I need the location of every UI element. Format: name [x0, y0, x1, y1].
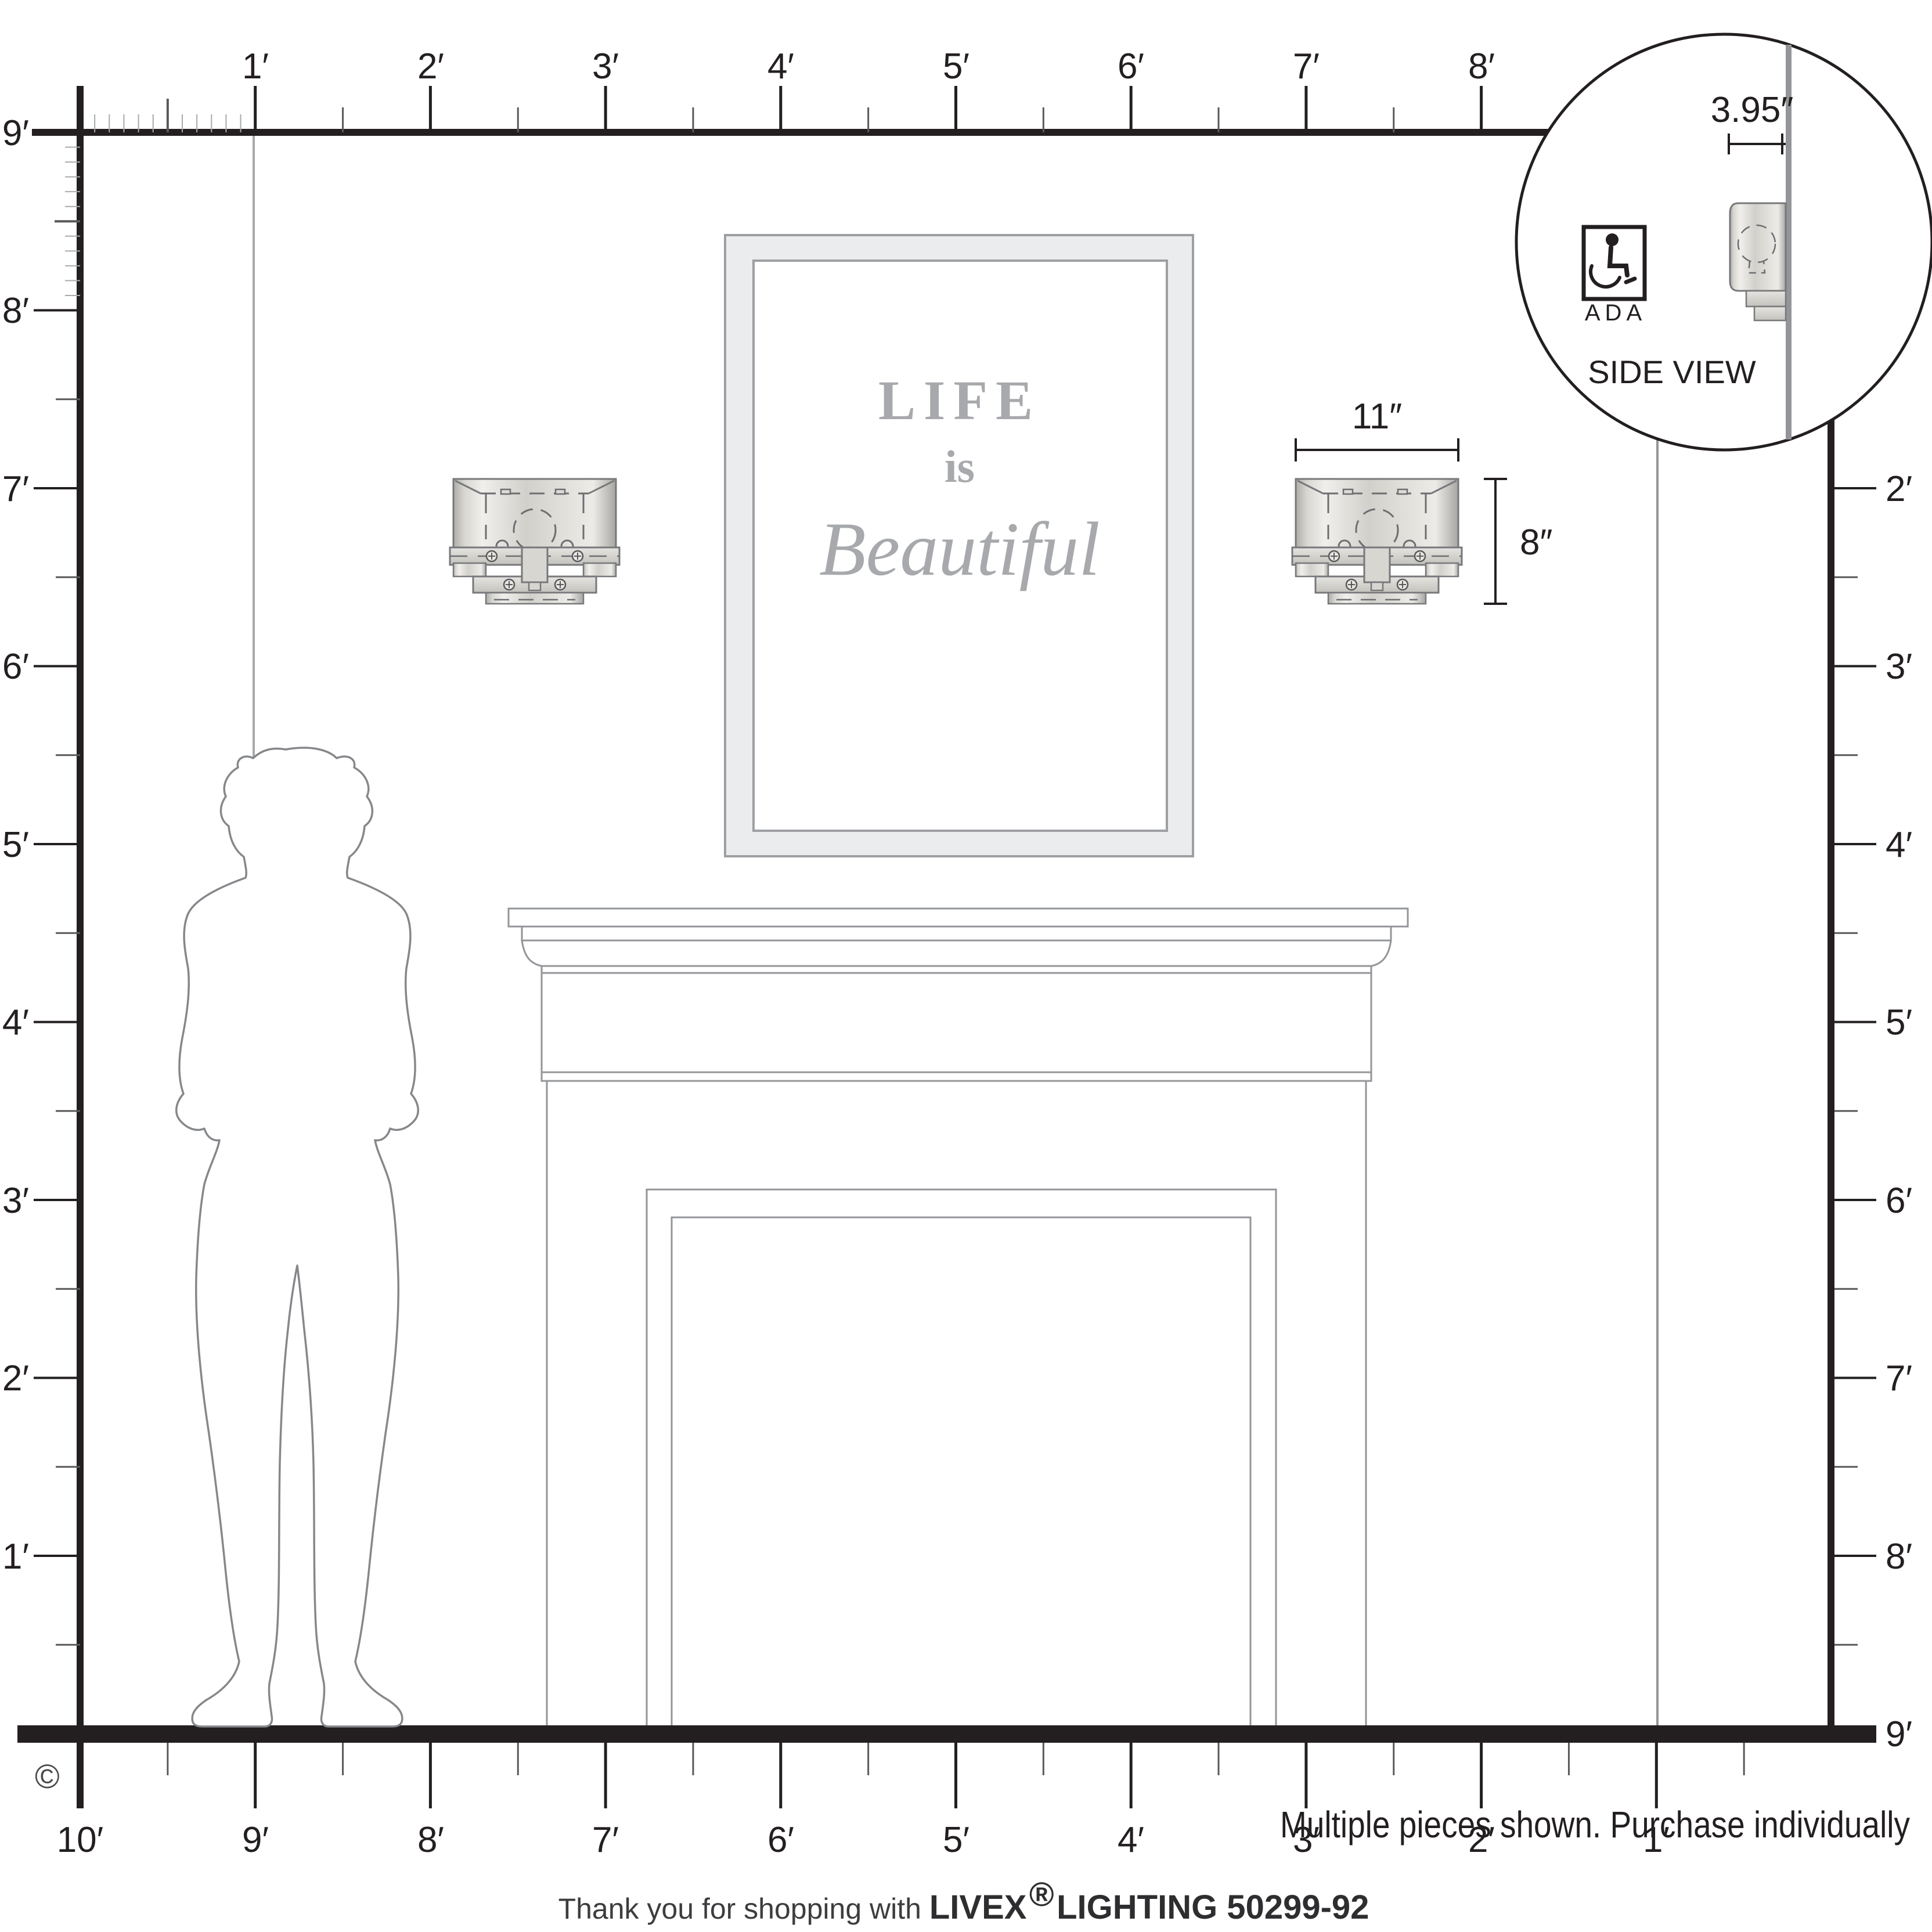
firebox-outer-frame [647, 1190, 1276, 1725]
right-ruler-label: 8′ [1886, 1537, 1912, 1577]
fireplace-mantel-shelf [509, 909, 1408, 927]
registered-mark: ® [1029, 1876, 1054, 1913]
bottom-ruler-label: 4′ [1118, 1820, 1144, 1860]
footer-brand-line: Thank you for shopping with LIVEX ® LIGH… [558, 1876, 1369, 1926]
bottom-ruler-label: 9′ [242, 1820, 269, 1860]
left-ruler-labels: 9′ 8′ 7′ 6′ 5′ 4′ 3′ 2′ 1′ [2, 113, 29, 1577]
depth-dimension-label: 3.95″ [1711, 90, 1794, 130]
thanks-text: Thank you for shopping with [558, 1893, 929, 1925]
bottom-ruler-label: 10′ [57, 1820, 104, 1860]
top-ruler-label: 8′ [1468, 46, 1495, 86]
width-dimension [1296, 438, 1458, 462]
left-ruler-label: 8′ [2, 291, 29, 331]
left-ruler-label: 9′ [2, 113, 29, 153]
top-ruler-label: 1′ [242, 46, 269, 86]
product-dimension-diagram: 1′ 2′ 3′ 4′ 5′ 6′ 7′ 8′ 9′ 8′ 7′ 6′ 5′ 4… [0, 0, 1932, 1932]
right-ruler-label: 7′ [1886, 1358, 1912, 1398]
artwork-text-line1: LIFE [878, 369, 1041, 431]
top-ruler-label: 7′ [1293, 46, 1320, 86]
artwork-text-line3: Beautiful [819, 506, 1100, 592]
right-ruler-labels: 2′ 3′ 4′ 5′ 6′ 7′ 8′ 9′ [1886, 469, 1912, 1754]
height-dimension [1484, 479, 1507, 604]
right-ruler-label: 2′ [1886, 469, 1912, 509]
left-ruler-label: 6′ [2, 647, 29, 687]
top-ruler-label: 4′ [767, 46, 794, 86]
bottom-ruler-label: 7′ [592, 1820, 619, 1860]
floor-line [17, 1725, 1876, 1743]
left-ruler-label: 5′ [2, 825, 29, 865]
top-ruler-label: 3′ [592, 46, 619, 86]
left-ruler-label: 1′ [2, 1537, 29, 1577]
right-ruler-ticks [1834, 399, 1876, 1645]
fireplace-frieze [542, 966, 1371, 1072]
wall-sconce-left [450, 479, 619, 604]
right-ruler-label: 5′ [1886, 1003, 1912, 1043]
right-ruler-label: 3′ [1886, 647, 1912, 687]
right-ruler-label: 4′ [1886, 825, 1912, 865]
left-ruler-label: 7′ [2, 469, 29, 509]
left-ruler-label: 3′ [2, 1181, 29, 1221]
fireplace [509, 909, 1408, 1725]
artwork-text-line2: is [945, 441, 975, 492]
bottom-ruler-label: 6′ [767, 1820, 794, 1860]
left-wall-line [77, 86, 84, 1808]
left-ruler-label: 4′ [2, 1003, 29, 1043]
copyright-symbol: © [35, 1758, 60, 1796]
ada-badge: ADA [1584, 227, 1646, 326]
side-view-inset: 3.95″ ADA SIDE VIEW [1516, 34, 1932, 450]
right-ruler-label: 6′ [1886, 1181, 1912, 1221]
ada-label: ADA [1585, 300, 1646, 326]
person-silhouette [176, 748, 419, 1726]
height-dimension-label: 8″ [1520, 522, 1552, 563]
side-view-label: SIDE VIEW [1588, 354, 1756, 390]
right-ruler-label: 9′ [1886, 1714, 1912, 1754]
brand-suffix: LIGHTING 50299-92 [1057, 1888, 1369, 1926]
framed-artwork: LIFE is Beautiful [725, 235, 1193, 856]
wall-sconce-right [1292, 479, 1462, 604]
brand-name: LIVEX [929, 1888, 1027, 1926]
fireplace-mantel-shelf-lower [522, 927, 1391, 940]
bottom-ruler-label: 8′ [417, 1820, 444, 1860]
firebox-inner-frame [672, 1217, 1250, 1725]
top-ruler-label: 5′ [943, 46, 969, 86]
top-ruler-label: 2′ [417, 46, 444, 86]
width-dimension-label: 11″ [1352, 397, 1402, 437]
purchase-note: Multiple pieces shown. Purchase individu… [1280, 1804, 1910, 1846]
left-ruler-ticks [34, 147, 80, 1645]
top-ruler-labels: 1′ 2′ 3′ 4′ 5′ 6′ 7′ 8′ [242, 46, 1495, 86]
left-ruler-label: 2′ [2, 1358, 29, 1398]
bottom-ruler-ticks [80, 1743, 1744, 1808]
fireplace-frieze-bottom-molding [542, 1072, 1371, 1081]
bottom-ruler-label: 5′ [943, 1820, 969, 1860]
fireplace-cove-molding [522, 940, 1391, 966]
diagram-canvas: 1′ 2′ 3′ 4′ 5′ 6′ 7′ 8′ 9′ 8′ 7′ 6′ 5′ 4… [0, 0, 1932, 1932]
top-ruler-ticks [80, 86, 1569, 132]
top-ruler-label: 6′ [1118, 46, 1144, 86]
